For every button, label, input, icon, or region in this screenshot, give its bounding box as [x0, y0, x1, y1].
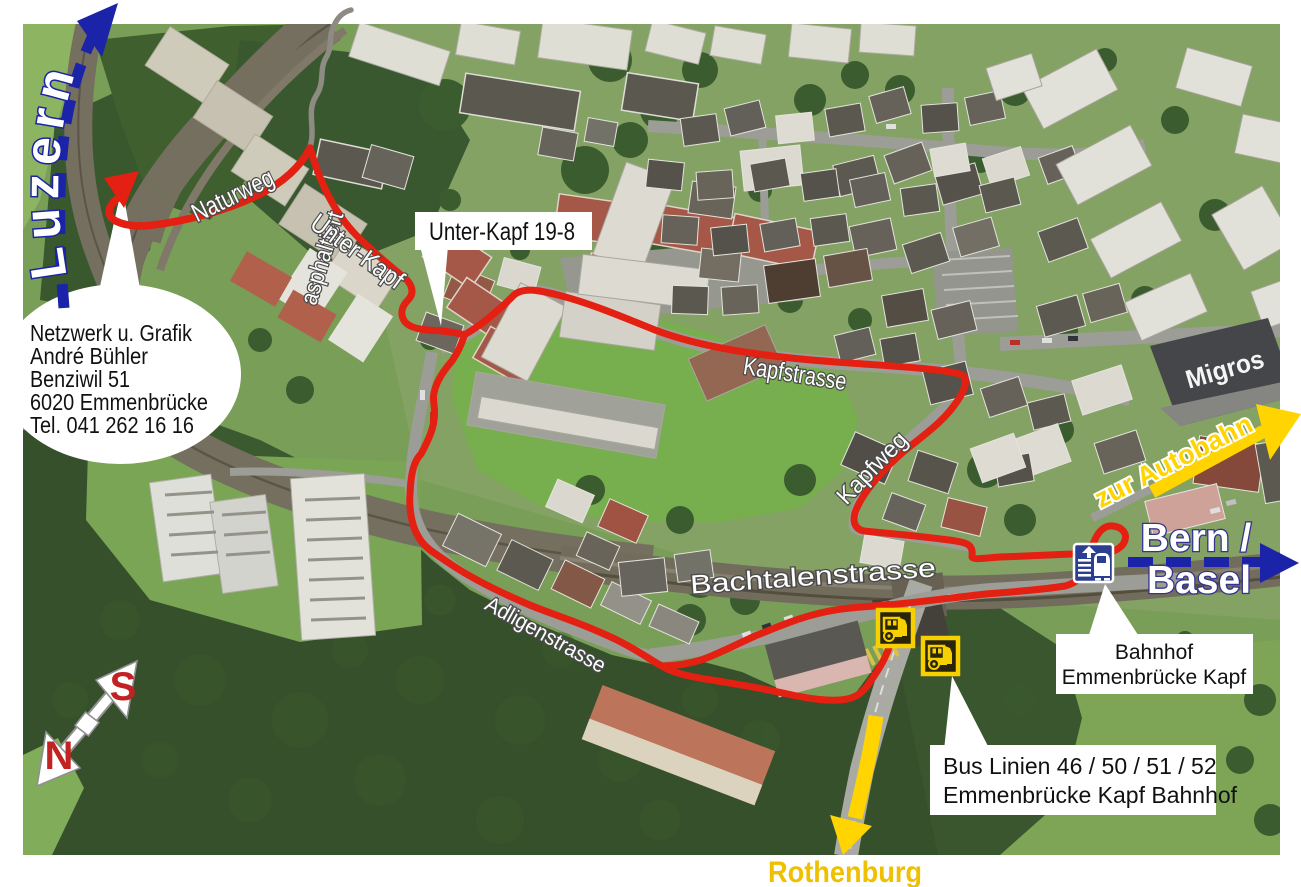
svg-text:N: N — [45, 734, 74, 778]
svg-text:Bus Linien 46 / 50 / 51 / 52: Bus Linien 46 / 50 / 51 / 52 — [943, 753, 1217, 779]
svg-text:S: S — [110, 665, 137, 709]
svg-text:Bern /: Bern / — [1141, 517, 1252, 560]
svg-text:Unter-Kapf 19-8: Unter-Kapf 19-8 — [429, 218, 575, 246]
svg-text:Bahnhof: Bahnhof — [1115, 641, 1193, 664]
svg-text:Tel. 041 262 16 16: Tel. 041 262 16 16 — [30, 412, 194, 438]
svg-text:Rothenburg: Rothenburg — [768, 856, 922, 887]
svg-text:Emmenbrücke Kapf Bahnhof: Emmenbrücke Kapf Bahnhof — [943, 782, 1238, 808]
svg-text:Emmenbrücke Kapf: Emmenbrücke Kapf — [1062, 666, 1247, 689]
svg-text:Basel: Basel — [1147, 559, 1251, 602]
